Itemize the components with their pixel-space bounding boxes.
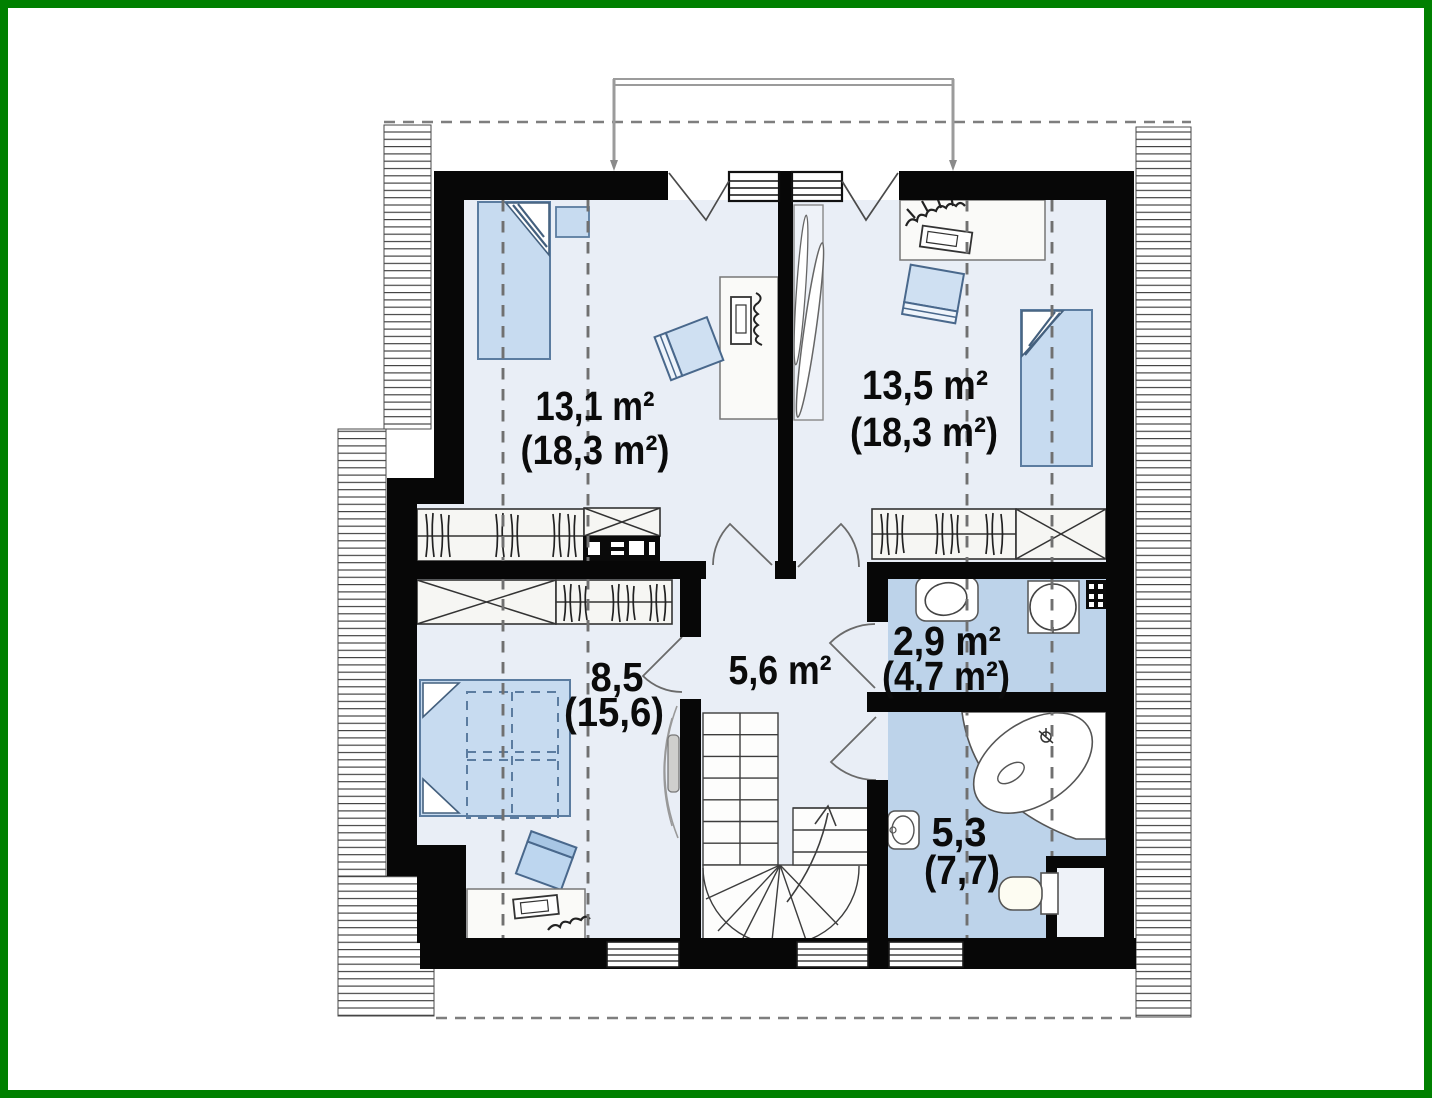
svg-text:(7,7): (7,7) [924, 847, 1000, 893]
svg-text:(18,3 m²): (18,3 m²) [850, 409, 998, 455]
svg-text:(15,6): (15,6) [564, 689, 664, 735]
svg-text:(4,7 m²): (4,7 m²) [882, 653, 1010, 699]
svg-text:5,6 m²: 5,6 m² [729, 647, 832, 693]
svg-text:13,1 m²: 13,1 m² [536, 383, 655, 429]
svg-text:13,5 m²: 13,5 m² [862, 362, 988, 408]
svg-text:(18,3 m²): (18,3 m²) [521, 427, 670, 473]
